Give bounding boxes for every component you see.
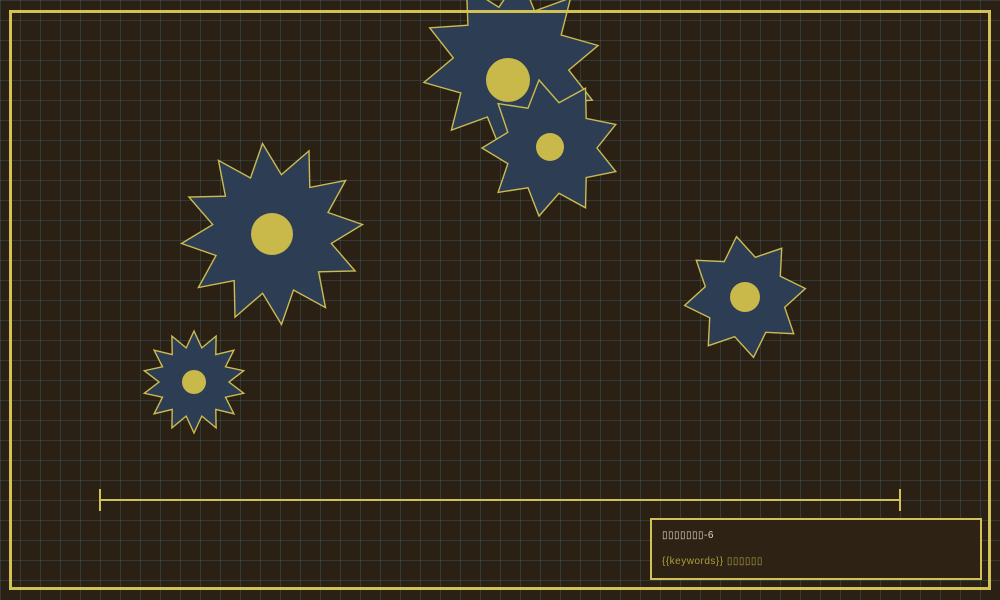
gear-top-small-hub[interactable] [536, 133, 564, 161]
timeline-end-cap[interactable] [899, 489, 901, 511]
info-panel: ▯▯▯▯▯▯▯-6 {{keywords}} ▯▯▯▯▯▯ [650, 518, 982, 580]
gear-top-large-hub[interactable] [486, 58, 530, 102]
gear-right-hub[interactable] [730, 282, 760, 312]
timeline-track[interactable] [100, 499, 900, 501]
gear-left-small-hub[interactable] [182, 370, 206, 394]
gears-layer [0, 0, 1000, 600]
game-canvas: ▯▯▯▯▯▯▯-6 {{keywords}} ▯▯▯▯▯▯ [0, 0, 1000, 600]
info-title: ▯▯▯▯▯▯▯-6 [662, 529, 970, 542]
timeline-start-cap[interactable] [99, 489, 101, 511]
info-keywords: {{keywords}} ▯▯▯▯▯▯ [662, 555, 970, 568]
gear-left-large-hub[interactable] [251, 213, 293, 255]
